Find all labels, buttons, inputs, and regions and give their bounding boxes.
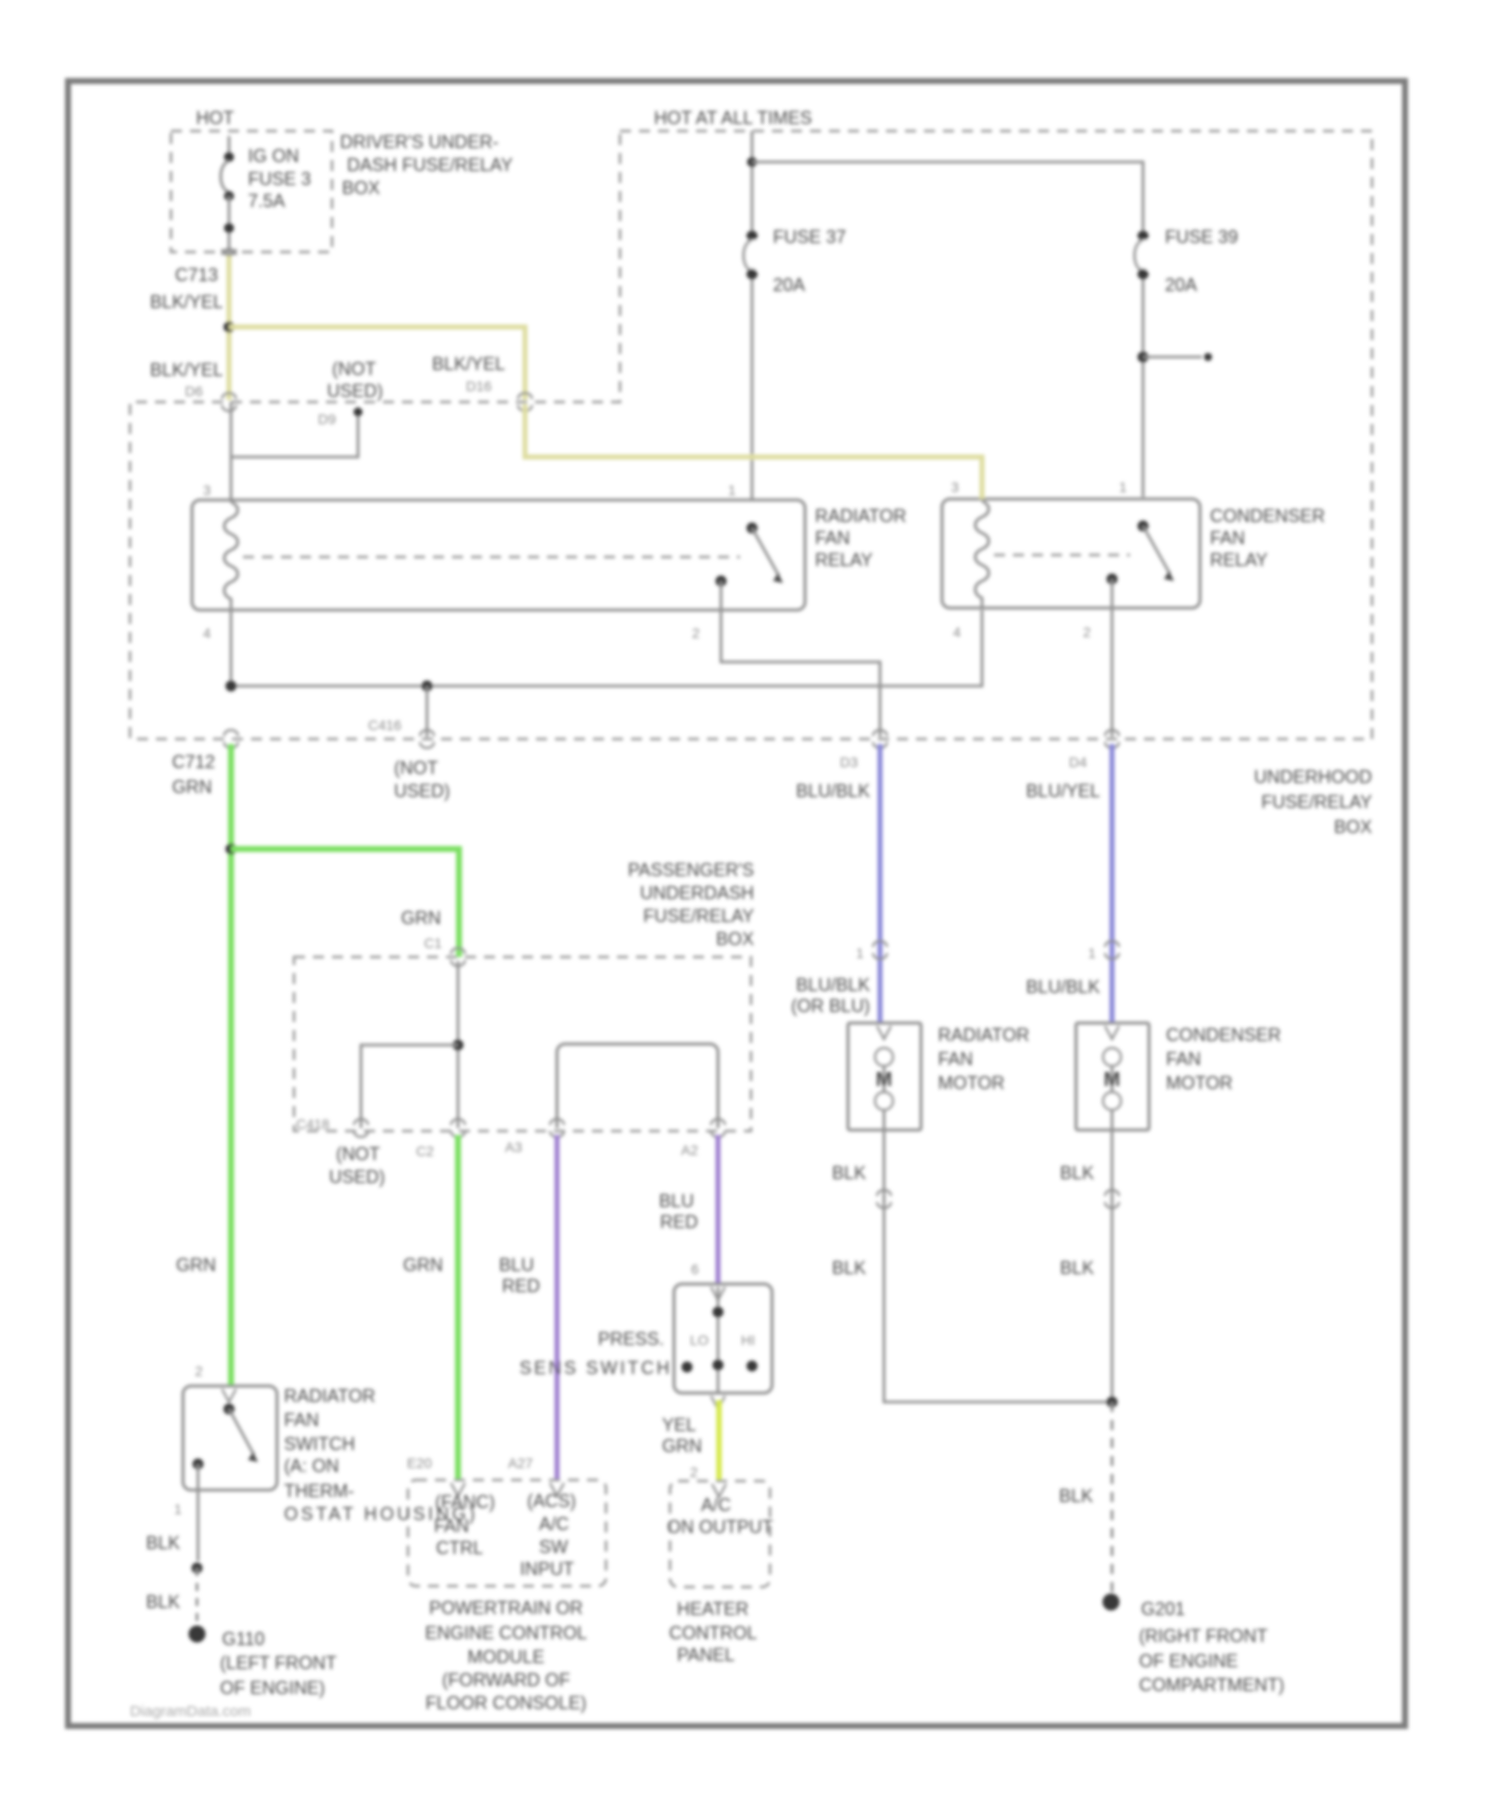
svg-text:1: 1 <box>728 482 736 498</box>
svg-text:A/C: A/C <box>539 1514 569 1534</box>
svg-text:BLK: BLK <box>832 1258 866 1278</box>
svg-text:BLU/BLK: BLU/BLK <box>1026 977 1100 997</box>
svg-text:D6: D6 <box>185 383 203 399</box>
svg-text:G201: G201 <box>1141 1599 1185 1619</box>
svg-text:BLK/YEL: BLK/YEL <box>432 354 505 374</box>
svg-text:CONDENSER: CONDENSER <box>1166 1025 1281 1045</box>
svg-text:1: 1 <box>1119 479 1127 495</box>
svg-text:FUSE 37: FUSE 37 <box>773 227 846 247</box>
svg-text:BOX: BOX <box>716 929 754 949</box>
svg-text:1: 1 <box>174 1501 182 1517</box>
svg-text:D4: D4 <box>1069 754 1087 770</box>
svg-text:BLK: BLK <box>1060 1163 1094 1183</box>
svg-text:MOTOR: MOTOR <box>938 1073 1005 1093</box>
svg-text:2: 2 <box>1083 624 1091 640</box>
svg-text:C713: C713 <box>175 265 218 285</box>
svg-text:FAN: FAN <box>1210 528 1245 548</box>
svg-text:20A: 20A <box>773 275 805 295</box>
svg-text:HOT AT ALL TIMES: HOT AT ALL TIMES <box>654 108 812 128</box>
svg-text:BLK: BLK <box>1059 1486 1093 1506</box>
svg-text:OSTAT HOUSING): OSTAT HOUSING) <box>284 1504 478 1524</box>
svg-text:FAN: FAN <box>815 528 850 548</box>
svg-text:M: M <box>876 1069 893 1091</box>
svg-text:GRN: GRN <box>172 777 212 797</box>
svg-text:FUSE 39: FUSE 39 <box>1165 227 1238 247</box>
svg-text:RADIATOR: RADIATOR <box>284 1386 375 1406</box>
svg-text:BLU/YEL: BLU/YEL <box>1026 781 1100 801</box>
svg-text:GRN: GRN <box>401 908 441 928</box>
svg-text:FUSE 3: FUSE 3 <box>248 169 311 189</box>
svg-text:RADIATOR: RADIATOR <box>815 506 906 526</box>
svg-text:BLK: BLK <box>146 1533 180 1553</box>
svg-text:UNDERHOOD: UNDERHOOD <box>1254 767 1372 787</box>
svg-text:DRIVER'S UNDER-: DRIVER'S UNDER- <box>340 132 498 152</box>
svg-text:FAN: FAN <box>1166 1049 1201 1069</box>
svg-text:RED: RED <box>660 1212 698 1232</box>
svg-text:BLU: BLU <box>659 1191 694 1211</box>
svg-text:POWERTRAIN OR: POWERTRAIN OR <box>429 1598 583 1618</box>
svg-text:YEL: YEL <box>662 1415 696 1435</box>
svg-text:USED): USED) <box>329 1167 385 1187</box>
svg-text:A27: A27 <box>508 1455 533 1471</box>
svg-text:SW: SW <box>539 1537 568 1557</box>
svg-text:C712: C712 <box>172 752 215 772</box>
svg-text:BOX: BOX <box>1334 817 1372 837</box>
svg-text:CONTROL: CONTROL <box>669 1623 757 1643</box>
svg-text:BLU/BLK: BLU/BLK <box>796 975 870 995</box>
svg-text:FUSE/RELAY: FUSE/RELAY <box>643 906 754 926</box>
svg-text:(NOT: (NOT <box>336 1144 380 1164</box>
svg-text:FAN: FAN <box>284 1410 319 1430</box>
svg-text:(FORWARD OF: (FORWARD OF <box>442 1670 570 1690</box>
svg-text:(ACS): (ACS) <box>527 1491 576 1511</box>
svg-text:G110: G110 <box>222 1629 265 1649</box>
svg-text:INPUT: INPUT <box>520 1559 574 1579</box>
svg-text:4: 4 <box>203 625 211 641</box>
svg-text:C1: C1 <box>424 935 442 951</box>
svg-text:4: 4 <box>953 624 961 640</box>
svg-text:BLK: BLK <box>146 1592 180 1612</box>
svg-text:UNDERDASH: UNDERDASH <box>640 883 754 903</box>
svg-text:A3: A3 <box>505 1139 522 1155</box>
svg-text:MOTOR: MOTOR <box>1166 1073 1233 1093</box>
svg-text:(LEFT FRONT: (LEFT FRONT <box>220 1653 337 1673</box>
svg-text:ON OUTPUT: ON OUTPUT <box>667 1517 773 1537</box>
svg-text:M: M <box>1104 1069 1121 1091</box>
svg-text:HEATER: HEATER <box>677 1599 749 1619</box>
svg-text:CTRL: CTRL <box>436 1538 483 1558</box>
svg-text:BLU/BLK: BLU/BLK <box>796 781 870 801</box>
svg-text:2: 2 <box>692 625 700 641</box>
svg-text:C418: C418 <box>296 1116 330 1132</box>
svg-text:CONDENSER: CONDENSER <box>1210 506 1325 526</box>
svg-text:(RIGHT FRONT: (RIGHT FRONT <box>1139 1626 1268 1646</box>
svg-text:3: 3 <box>951 479 959 495</box>
svg-text:D9: D9 <box>318 411 336 427</box>
svg-text:2: 2 <box>690 1464 698 1480</box>
svg-text:A2: A2 <box>681 1142 698 1158</box>
svg-text:C416: C416 <box>368 717 402 733</box>
svg-text:20A: 20A <box>1165 275 1197 295</box>
svg-text:7.5A: 7.5A <box>248 191 285 211</box>
svg-text:HI: HI <box>741 1332 755 1348</box>
svg-text:LO: LO <box>690 1332 709 1348</box>
svg-text:FAN: FAN <box>938 1049 973 1069</box>
svg-text:(OR BLU): (OR BLU) <box>791 996 870 1016</box>
svg-text:1: 1 <box>1088 945 1096 961</box>
svg-text:3: 3 <box>203 482 211 498</box>
svg-text:RADIATOR: RADIATOR <box>938 1025 1029 1045</box>
svg-text:HOT: HOT <box>196 108 234 128</box>
svg-text:(NOT: (NOT <box>394 758 438 778</box>
svg-text:6: 6 <box>691 1261 699 1277</box>
svg-text:D16: D16 <box>466 378 492 394</box>
svg-text:GRN: GRN <box>662 1436 702 1456</box>
svg-text:RED: RED <box>502 1276 540 1296</box>
svg-text:SWITCH: SWITCH <box>284 1434 355 1454</box>
svg-text:C2: C2 <box>416 1143 434 1159</box>
svg-text:DiagramData.com: DiagramData.com <box>130 1703 251 1720</box>
svg-text:A/C: A/C <box>701 1495 731 1515</box>
svg-text:USED): USED) <box>327 381 383 401</box>
svg-text:GRN: GRN <box>403 1255 443 1275</box>
svg-text:BOX: BOX <box>342 178 380 198</box>
svg-text:DASH FUSE/RELAY: DASH FUSE/RELAY <box>347 155 513 175</box>
svg-text:FLOOR CONSOLE): FLOOR CONSOLE) <box>425 1693 586 1713</box>
svg-text:THERM-: THERM- <box>284 1481 354 1501</box>
svg-text:BLK: BLK <box>1060 1258 1094 1278</box>
svg-text:GRN: GRN <box>176 1255 216 1275</box>
svg-text:D3: D3 <box>840 754 858 770</box>
svg-text:FUSE/RELAY: FUSE/RELAY <box>1261 792 1372 812</box>
svg-text:IG ON: IG ON <box>248 146 299 166</box>
svg-text:COMPARTMENT): COMPARTMENT) <box>1139 1675 1284 1695</box>
svg-text:2: 2 <box>195 1363 203 1379</box>
svg-text:RELAY: RELAY <box>815 550 873 570</box>
svg-text:PRESS.: PRESS. <box>598 1329 664 1349</box>
svg-text:BLK/YEL: BLK/YEL <box>150 360 223 380</box>
svg-text:MODULE: MODULE <box>467 1647 544 1667</box>
svg-text:(A: ON: (A: ON <box>284 1456 339 1476</box>
svg-text:OF ENGINE): OF ENGINE) <box>220 1678 325 1698</box>
svg-text:USED): USED) <box>394 781 450 801</box>
svg-text:1: 1 <box>856 945 864 961</box>
svg-text:OF ENGINE: OF ENGINE <box>1139 1651 1238 1671</box>
svg-text:RELAY: RELAY <box>1210 550 1268 570</box>
svg-text:ENGINE CONTROL: ENGINE CONTROL <box>425 1623 587 1643</box>
svg-text:PASSENGER'S: PASSENGER'S <box>628 860 754 880</box>
svg-text:E20: E20 <box>407 1455 432 1471</box>
svg-text:SENS SWITCH: SENS SWITCH <box>519 1358 672 1378</box>
svg-text:BLU: BLU <box>499 1255 534 1275</box>
svg-text:BLK: BLK <box>832 1163 866 1183</box>
svg-text:(NOT: (NOT <box>332 359 376 379</box>
svg-text:PANEL: PANEL <box>677 1645 735 1665</box>
svg-text:BLK/YEL: BLK/YEL <box>150 292 223 312</box>
